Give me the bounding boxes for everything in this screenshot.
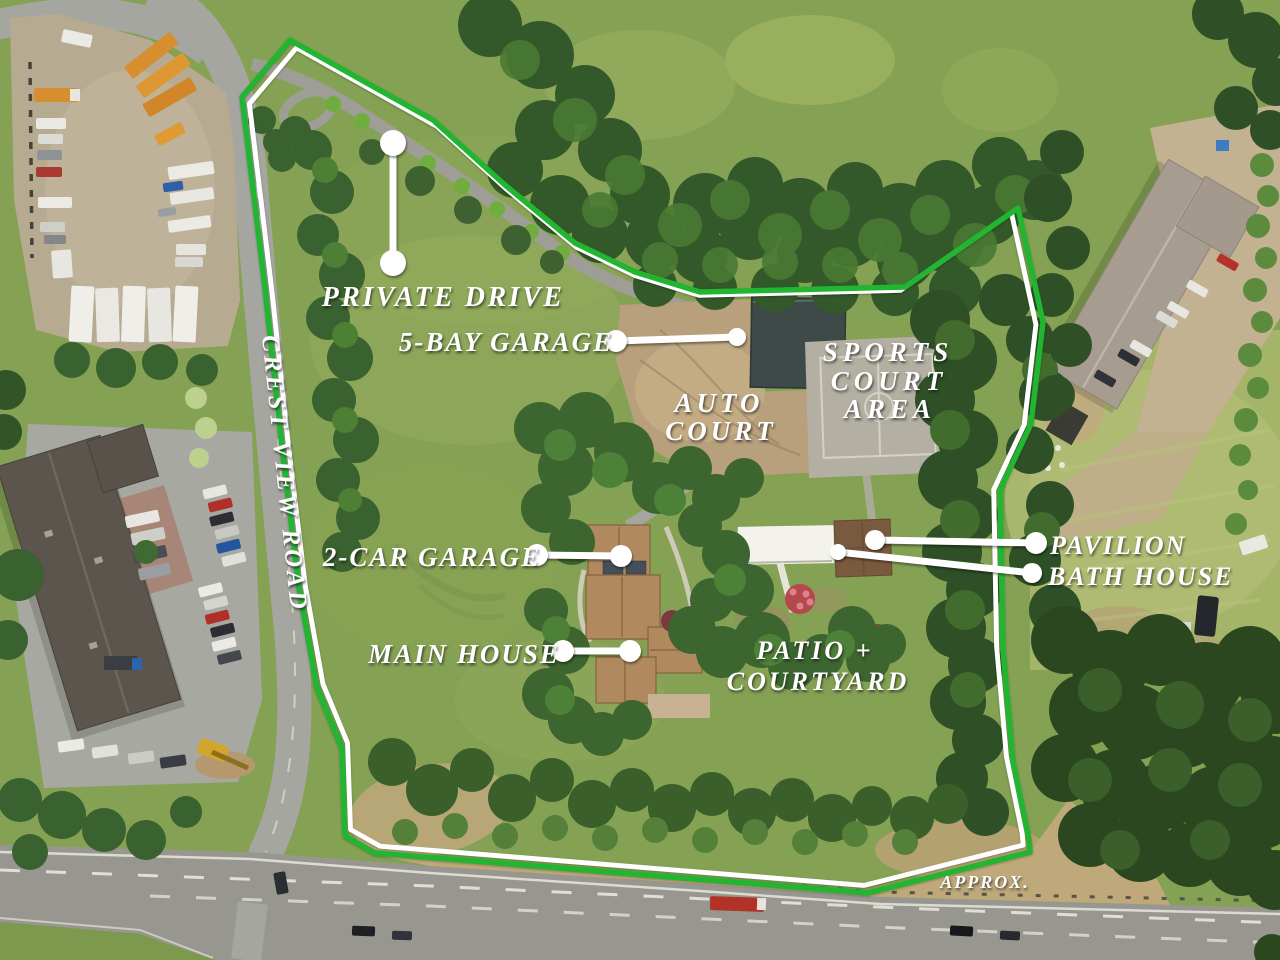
aerial-site-plan: PRIVATE DRIVE 5-BAY GARAGE SPORTS COURT … — [0, 0, 1280, 960]
leader-five-bay-garage — [616, 337, 737, 341]
label-main-house: MAIN HOUSE — [367, 639, 560, 669]
label-five-bay-garage: 5-BAY GARAGE — [399, 327, 613, 357]
leader-two-car-garage — [537, 555, 621, 556]
label-approx: APPROX. — [939, 872, 1030, 892]
label-sports-court-line2: COURT — [831, 366, 948, 396]
label-sports-court-line3: AREA — [842, 394, 936, 424]
leader-pavilion — [875, 540, 1036, 543]
pink-flowering-tree — [785, 584, 815, 614]
label-auto-court-line2: COURT — [665, 416, 777, 446]
label-patio-line1: PATIO + — [756, 636, 874, 665]
label-private-drive: PRIVATE DRIVE — [321, 282, 565, 313]
label-pavilion: PAVILION — [1049, 531, 1186, 560]
label-bath-house: BATH HOUSE — [1047, 562, 1233, 591]
label-two-car-garage: 2-CAR GARAGE — [322, 542, 541, 572]
white-slab-court — [738, 525, 835, 565]
label-auto-court-line1: AUTO — [672, 388, 763, 418]
parked-suv — [1194, 595, 1219, 637]
label-sports-court-line1: SPORTS — [823, 337, 954, 367]
aerial-photo: PRIVATE DRIVE 5-BAY GARAGE SPORTS COURT … — [0, 0, 1280, 960]
label-patio-line2: COURTYARD — [727, 667, 910, 696]
